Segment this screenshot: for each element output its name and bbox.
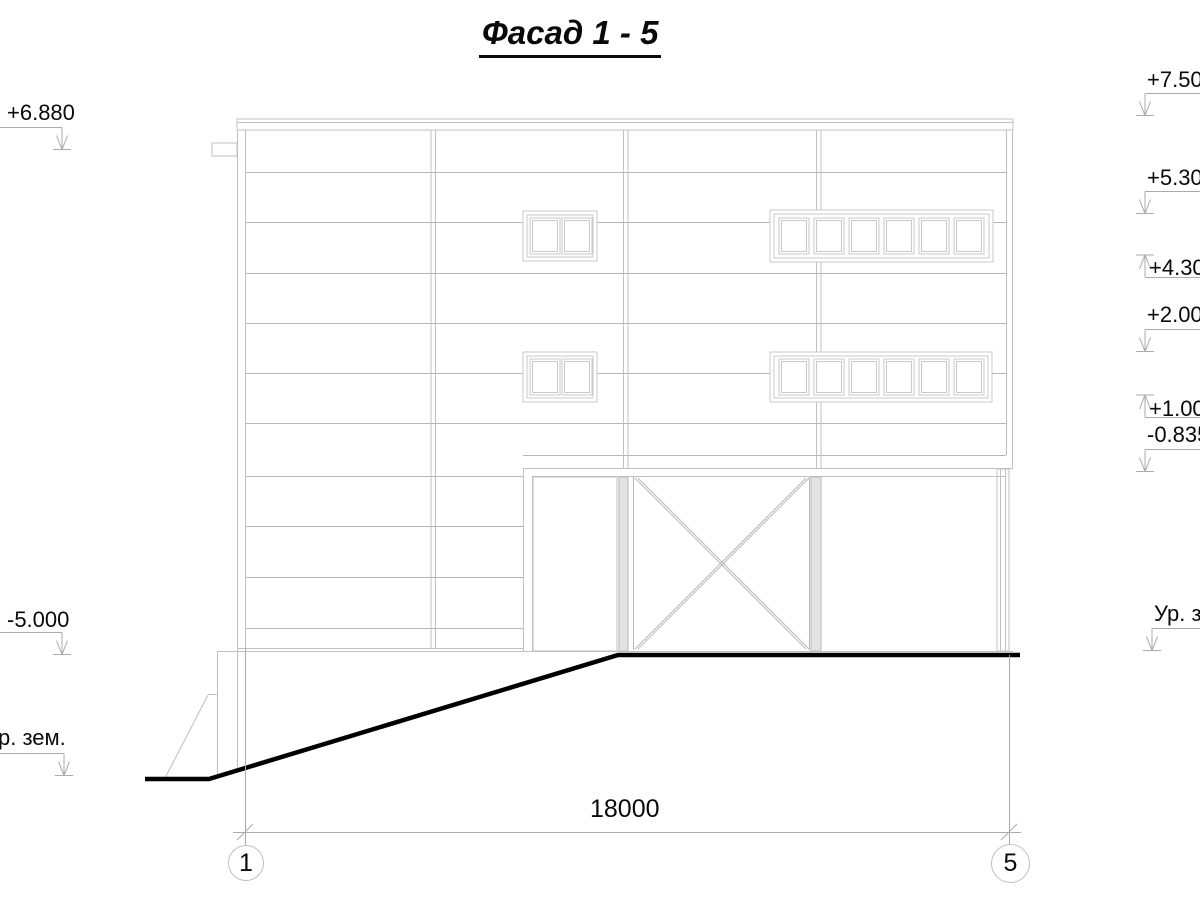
elevation-label-plus2000: +2.000 — [1147, 303, 1200, 326]
marker-ground-left — [0, 754, 73, 776]
axis-number-1: 1 — [239, 849, 253, 878]
marker-ground-right — [1143, 629, 1200, 651]
elevation-label-plus6880: +6.880 — [7, 101, 75, 124]
ground-level-label-left: Ур. зем. — [0, 726, 66, 749]
elevation-label-plus7500: +7.500 — [1147, 68, 1200, 91]
elevation-label-plus4300: +4.300 — [1149, 256, 1200, 279]
parapet-scupper — [212, 143, 237, 156]
foundation-outline — [165, 651, 218, 778]
column-c — [997, 469, 1009, 651]
elevation-label-minus5000: -5.000 — [7, 608, 69, 631]
column-b — [811, 477, 821, 651]
ground-line — [145, 655, 1020, 779]
elevation-label-minus0835: -0.835 — [1147, 423, 1200, 446]
undercroft — [524, 468, 1010, 651]
dimension-value: 18000 — [590, 795, 660, 824]
drawing-title: Фасад 1 - 5 — [479, 14, 661, 58]
strip-window-upper — [770, 210, 993, 262]
x-brace-bay — [634, 477, 810, 650]
marker-plus5300 — [1136, 192, 1200, 214]
axis-number-5: 5 — [1004, 849, 1018, 878]
elevation-label-plus1000: +1.000 — [1149, 397, 1200, 420]
elevation-label-plus5300: +5.300 — [1147, 166, 1200, 189]
axis-marker-1: 1 — [228, 845, 264, 881]
marker-plus6880 — [0, 128, 71, 150]
marker-plus2000 — [1136, 330, 1200, 352]
axis-marker-5: 5 — [991, 844, 1030, 883]
marker-minus5000 — [0, 633, 71, 655]
facade-drawing-sheet: Фасад 1 - 5 +6.880 -5.000 Ур. зем. +7.50… — [0, 0, 1200, 900]
undercroft-door-panel — [533, 477, 617, 651]
small-window-upper — [523, 211, 597, 261]
strip-window-lower — [770, 352, 992, 402]
facade-linework — [0, 0, 1200, 900]
elevation-markers — [0, 94, 1200, 776]
marker-plus7500 — [1136, 94, 1200, 116]
ground-level-label-right: Ур. зем. — [1154, 602, 1200, 625]
small-window-lower — [523, 352, 597, 402]
column-a — [619, 477, 628, 651]
marker-minus0835 — [1136, 450, 1200, 472]
